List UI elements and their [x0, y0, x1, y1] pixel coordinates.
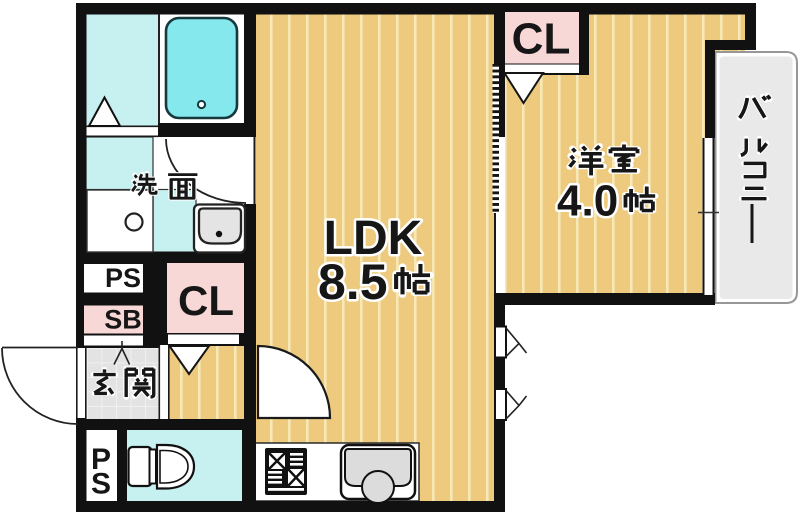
svg-text:SB: SB [104, 305, 142, 335]
svg-text:CL: CL [178, 277, 234, 324]
svg-text:S: S [91, 468, 111, 501]
svg-text:4.0: 4.0 [557, 177, 618, 226]
svg-text:PS: PS [105, 263, 141, 293]
svg-text:CL: CL [512, 15, 571, 64]
svg-text:8.5: 8.5 [318, 254, 388, 310]
